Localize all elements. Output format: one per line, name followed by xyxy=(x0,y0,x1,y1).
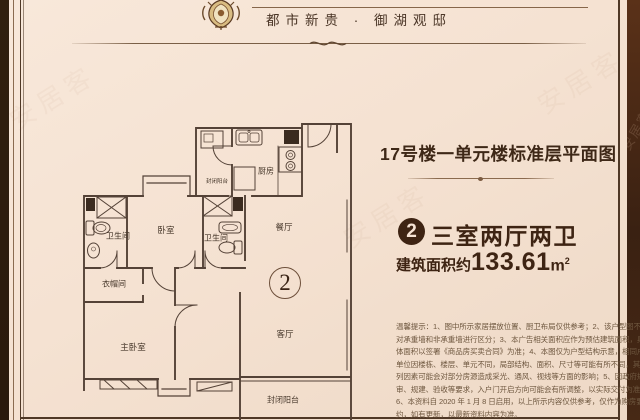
unit-badge: 2 xyxy=(398,218,425,245)
disclaimer-line: 约，如有更新，以最新资料内容为准。 xyxy=(396,409,628,420)
room-label-enclosed-balcony-top: 封闭阳台 xyxy=(206,177,228,185)
title-divider-dot xyxy=(478,177,483,181)
disclaimer-line: 审、规建、验收等要求，入户门开启方向可能会有所调整，以实际交付为准； xyxy=(396,384,628,397)
room-label-living: 客厅 xyxy=(276,328,293,340)
area-unit: m2 xyxy=(550,256,569,275)
disclaimer-line: 体面积以签署《商品房买卖合同》为准；4、本图仅为户型结构示意，相同户型 xyxy=(396,346,628,359)
room-label-bedroom: 卧室 xyxy=(157,224,174,236)
room-label-kitchen: 厨房 xyxy=(258,166,274,177)
room-label-master-bedroom: 主卧室 xyxy=(120,341,146,353)
disclaimer-line: 6、本资料自 2020 年 1 月 8 日启用，以上所示内容仅供参考，仅作为购房… xyxy=(396,396,628,409)
disclaimer-text: 温馨提示：1、图中所示家居摆放位置、厨卫布局仅供参考；2、该户型图不 对承重墙和… xyxy=(396,321,628,420)
area-text: 建筑面积约133.61m2 xyxy=(396,248,570,277)
area-label: 建筑面积约 xyxy=(396,254,471,275)
room-label-enclosed-balcony-bottom: 封闭阳台 xyxy=(267,395,299,406)
room-label-cloakroom: 衣帽间 xyxy=(102,279,126,290)
unit-number-circle: 2 xyxy=(269,267,301,299)
area-value: 133.61 xyxy=(471,248,550,277)
floorplan-poster: 安居客 安居客 安居客 安居客 都市新贵 · 御湖观邸 xyxy=(0,0,640,420)
disclaimer-line: 单位因楼栋、楼层、单元不同，局部结构、面积、尺寸等可能有所不同，其中所 xyxy=(396,359,628,372)
plan-title: 17号楼一单元楼标准层平面图 xyxy=(380,141,616,166)
room-type-text: 三室两厅两卫 xyxy=(431,217,578,251)
room-label-dining: 餐厅 xyxy=(275,221,292,233)
room-label-bathroom-2: 卫生间 xyxy=(204,233,228,244)
disclaimer-line: 温馨提示：1、图中所示家居摆放位置、厨卫布局仅供参考；2、该户型图不 xyxy=(396,321,628,334)
disclaimer-line: 列因素可能会对部分房源造成采光、通风、视线等方面的影响；5、因政府规 xyxy=(396,371,628,384)
disclaimer-line: 对承重墙和非承重墙进行区分；3、本广告相关面积应作为预估建筑面积，具 xyxy=(396,334,628,347)
room-label-bathroom-1: 卫生间 xyxy=(106,231,130,242)
